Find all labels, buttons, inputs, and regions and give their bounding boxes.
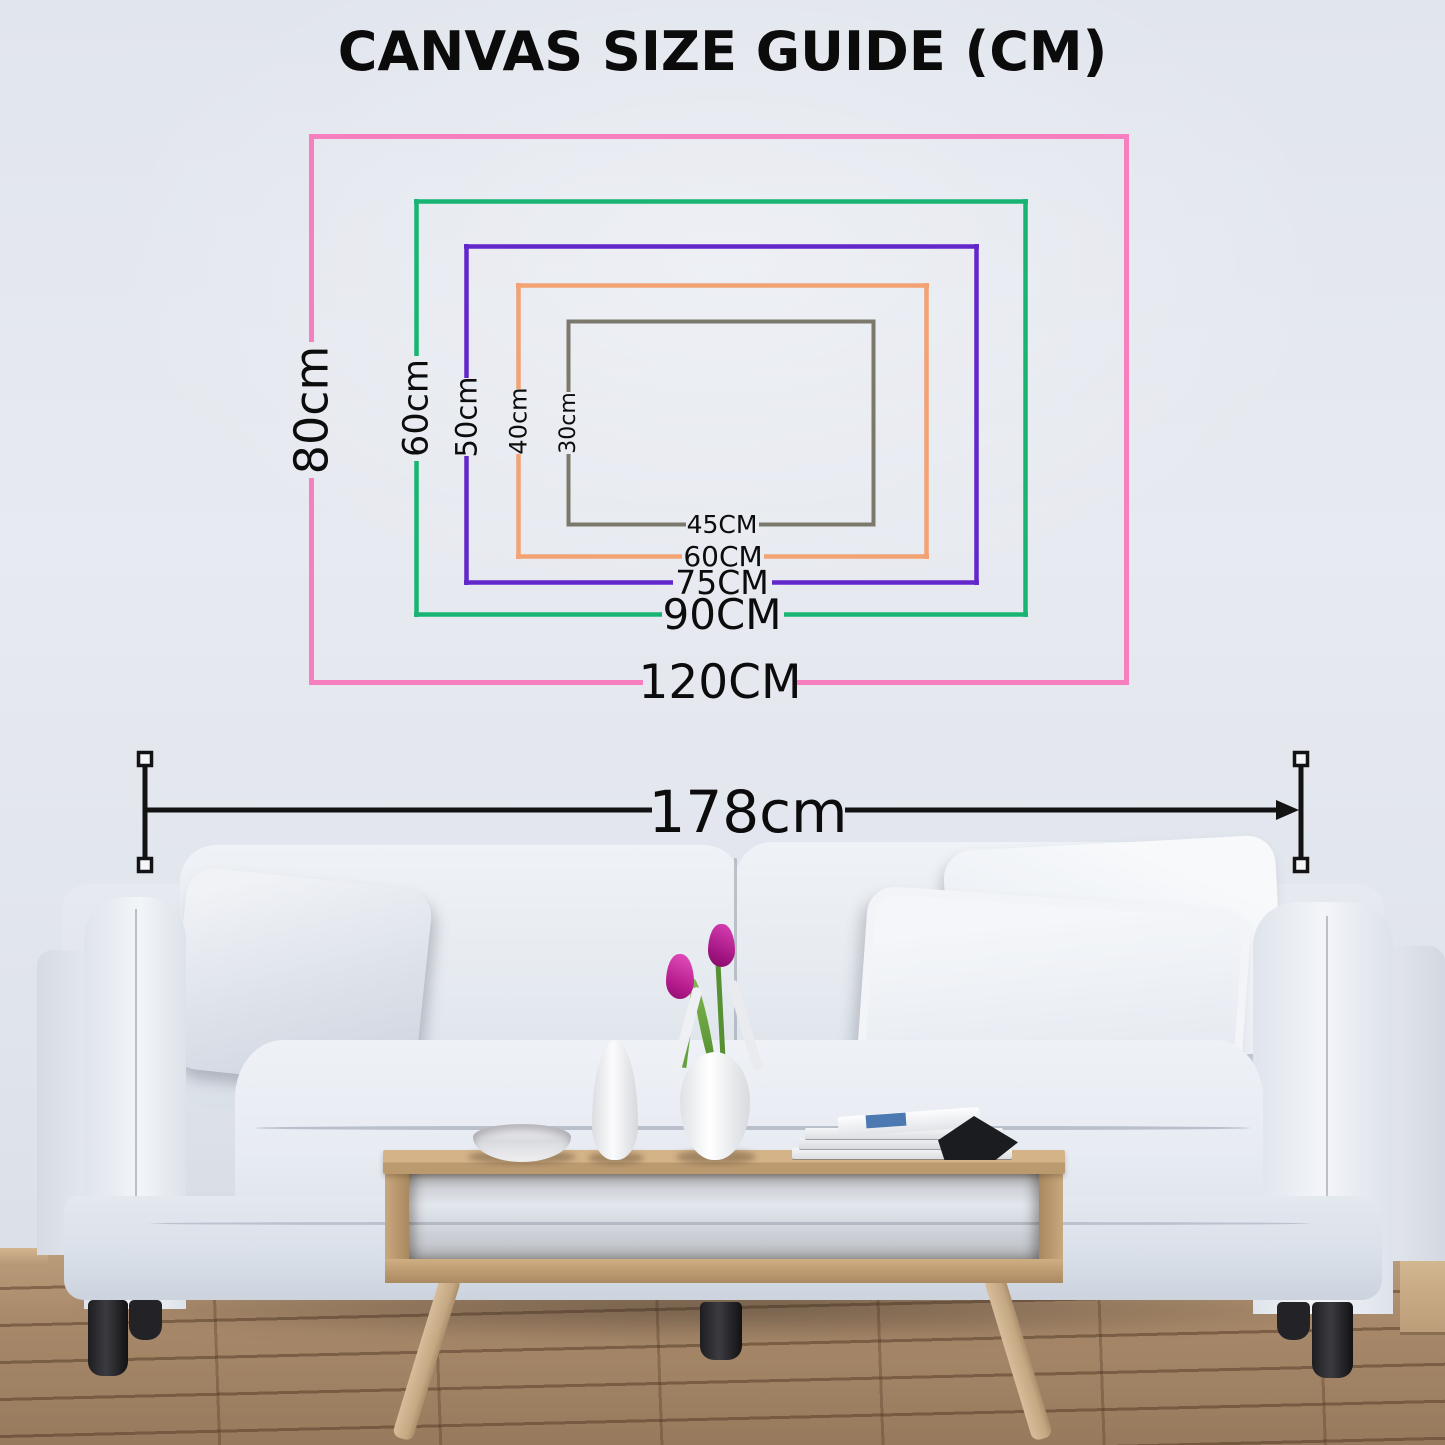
width-label-75cm: 75CM bbox=[675, 563, 769, 602]
sofa-leg bbox=[88, 1300, 128, 1376]
wall-width-label: 178cm bbox=[648, 778, 847, 846]
table-open-compartment bbox=[409, 1172, 1039, 1259]
size-rect-45x30 bbox=[567, 320, 876, 527]
size-rect-75x50 bbox=[464, 244, 979, 585]
sofa-leg bbox=[1312, 1302, 1353, 1378]
tulip-vase bbox=[680, 1052, 750, 1160]
width-label-60cm: 60CM bbox=[683, 540, 762, 573]
height-label-50cm: 50cm bbox=[450, 376, 484, 457]
height-label-80cm: 80cm bbox=[285, 346, 339, 475]
height-label-40cm: 40cm bbox=[505, 387, 533, 454]
sofa-seat-seam bbox=[255, 1126, 1250, 1130]
magazine-page-photo bbox=[866, 1113, 907, 1129]
tulip-flower bbox=[708, 924, 735, 967]
size-rect-120x80 bbox=[309, 134, 1129, 685]
table-shelf bbox=[385, 1259, 1063, 1283]
height-label-30cm: 30cm bbox=[556, 392, 581, 454]
sofa-leg bbox=[700, 1302, 742, 1360]
page-title: CANVAS SIZE GUIDE (CM) bbox=[0, 20, 1445, 83]
sofa-leg bbox=[129, 1300, 162, 1340]
handle-square bbox=[139, 859, 152, 872]
handle-square bbox=[1295, 753, 1308, 766]
tulip-flower bbox=[666, 954, 694, 999]
arrowhead-right-icon bbox=[1276, 800, 1299, 820]
width-label-90cm: 90CM bbox=[662, 590, 781, 639]
baseboard-right bbox=[1400, 1248, 1445, 1335]
handle-square bbox=[1295, 859, 1308, 872]
height-label-60cm: 60cm bbox=[397, 359, 437, 457]
sofa-leg bbox=[1277, 1302, 1310, 1340]
canvas-size-guide-poster: CANVAS SIZE GUIDE (CM) bbox=[0, 0, 1445, 1445]
width-label-45cm: 45CM bbox=[687, 510, 758, 539]
width-label-120cm: 120CM bbox=[638, 655, 801, 710]
size-rect-60x40 bbox=[516, 283, 929, 559]
sofa-right-arm-outer-panel bbox=[1388, 946, 1445, 1261]
handle-square bbox=[139, 753, 152, 766]
size-rect-90x60 bbox=[414, 199, 1028, 617]
